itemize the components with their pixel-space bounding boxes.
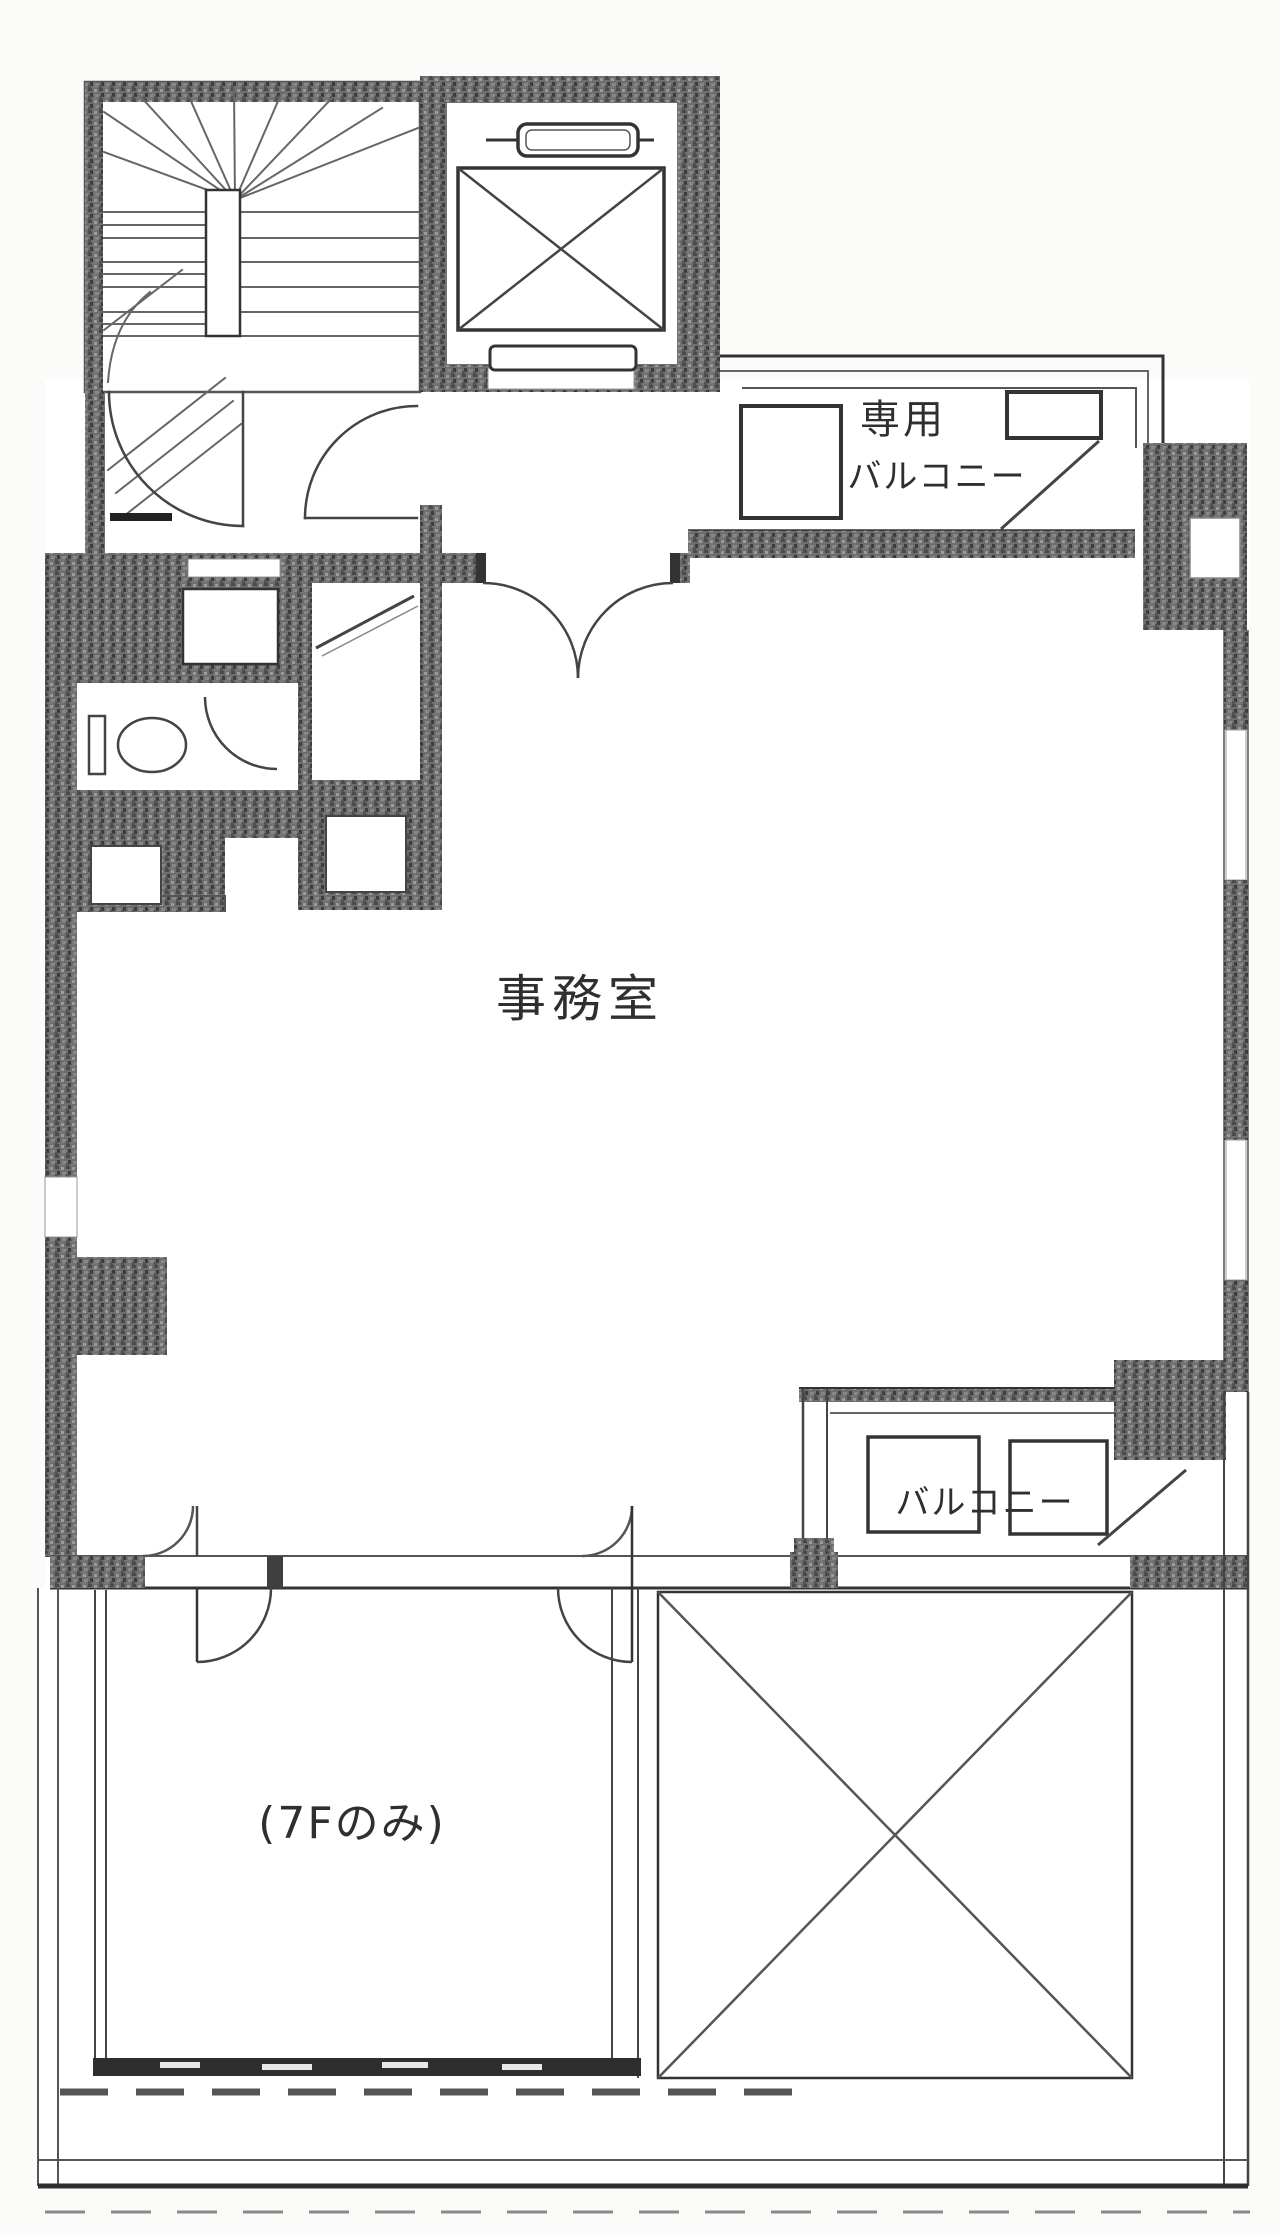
wc-right-wall [420, 505, 442, 910]
office-label: 事務室 [496, 970, 664, 1028]
right-wall-window-lower [1226, 1140, 1246, 1280]
entry-door-post-right [670, 553, 680, 583]
left-wall-window-slot [45, 1177, 77, 1237]
left-wall-pilaster [77, 1257, 167, 1355]
wc-bottom-wall [77, 790, 312, 838]
left-counter-sink [91, 846, 161, 904]
wc-divider-wall [298, 583, 312, 790]
elevator-shaft [420, 76, 720, 392]
floor-plan: 専用 バルコニー [0, 0, 1280, 2233]
stair-step-edge [110, 513, 172, 521]
hall-left-wall [85, 392, 105, 553]
room-7f-label: (7Fのみ) [258, 1798, 446, 1849]
entry-door-post-left [476, 553, 486, 583]
stairwell-left-wall [85, 102, 103, 392]
bottom-wall-post [267, 1556, 283, 1588]
left-outer-wall [45, 553, 77, 1557]
private-balcony-window-left [741, 406, 841, 518]
elevator-sill [490, 346, 636, 370]
private-balcony-label-line1: 専用 [860, 397, 946, 443]
elevator-wall-top [420, 76, 720, 102]
top-wall-window-slot [188, 559, 280, 577]
balcony-corner-block [1114, 1360, 1226, 1460]
balcony-top-wall [799, 1389, 1114, 1402]
office-right-wall [1224, 630, 1248, 1392]
elevator-wall-left [420, 102, 446, 392]
stairwell-top-wall [85, 82, 420, 102]
private-balcony-label-line2: バルコニー [847, 457, 1026, 497]
toilet-icon [89, 716, 186, 774]
private-balcony-bottom-wall [688, 530, 1135, 558]
kitchenette-sink [326, 816, 406, 892]
right-wall-window-upper [1226, 730, 1246, 880]
void-area [658, 1592, 1132, 2078]
corner-block-notch [1190, 518, 1240, 578]
stair-newel-post [206, 190, 240, 336]
corner-block-top-right [1143, 443, 1247, 630]
duct-shaft [183, 589, 278, 664]
private-balcony-window-right [1007, 392, 1101, 438]
elevator-car [458, 168, 664, 330]
balcony-label: バルコニー [895, 1483, 1074, 1523]
elevator-wall-right [678, 76, 720, 392]
